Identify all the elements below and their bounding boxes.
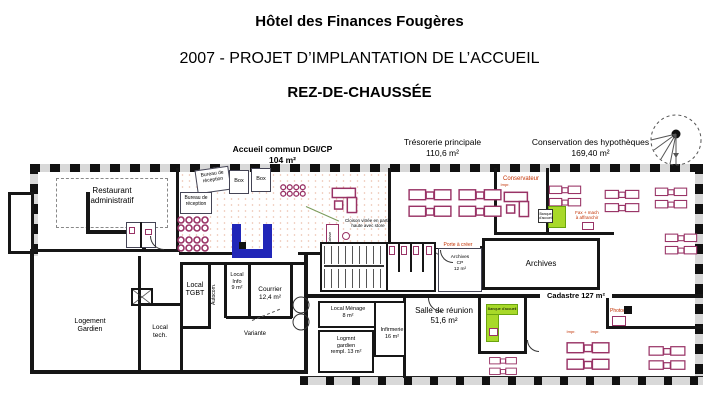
wall	[140, 222, 142, 248]
stair-treads	[324, 246, 384, 264]
note-cloison: Cloison vitrée en partie haute avec stor…	[334, 218, 402, 229]
wall	[606, 326, 703, 329]
wall	[179, 252, 237, 255]
wall	[388, 168, 391, 252]
photocopier-icon	[612, 316, 626, 326]
banque-accueil-tag: Banque d'accueil	[538, 209, 553, 223]
desk-icon	[330, 186, 360, 216]
note-variante: Variante	[238, 331, 272, 338]
room-label-local-info: Local Info 9 m²	[226, 272, 248, 292]
room-label-archives: Archives	[485, 259, 597, 269]
waiting-chairs-icon	[280, 184, 306, 197]
wall	[494, 232, 614, 235]
wall	[478, 298, 481, 354]
room-label-courrier: Courrier 12,4 m²	[250, 286, 290, 302]
banque-accueil-highlight: Banque d'accueil	[486, 304, 518, 315]
banque-accueil-label: Banque d'accueil	[539, 212, 552, 220]
room-archives: Archives	[482, 238, 600, 290]
wall	[30, 164, 696, 172]
entrance-porch	[8, 192, 34, 254]
wall	[398, 242, 400, 272]
sink-icon	[145, 229, 152, 235]
spiral-staircase-icon	[646, 112, 706, 170]
double-door-icon	[290, 296, 312, 332]
wall	[30, 252, 34, 374]
room-label-bureau-reception-1: Bureau de réception	[196, 169, 229, 185]
wall	[180, 262, 306, 265]
toilet-icon	[389, 246, 395, 255]
room-label-infirmerie: Infirmerie 16 m²	[370, 327, 414, 340]
reception-desk-blue	[232, 224, 272, 258]
room-label-local-tech: Local tech.	[140, 324, 180, 340]
wall	[410, 242, 412, 272]
zone-title-tresorerie: Trésorerie principale 110,6 m²	[375, 137, 510, 159]
desk-cluster-icon	[652, 184, 690, 212]
room-bureau-reception-2: Bureau de réception	[180, 192, 212, 214]
desk-cluster-icon	[646, 342, 688, 374]
note-imprimante: Impr.	[498, 183, 512, 188]
room-label-local-tgbt: Local TGBT	[182, 282, 208, 299]
room-label-bureau-reception-2: Bureau de réception	[181, 195, 211, 207]
shaft-x-box	[131, 288, 153, 306]
desk-cluster-icon	[408, 184, 452, 222]
room-label-autocom: Autocom.	[211, 268, 224, 320]
desk-cluster-icon	[482, 354, 524, 378]
door-arc	[527, 340, 539, 352]
page-title: Hôtel des Finances Fougères	[0, 13, 719, 30]
room-label-restaurant: Restaurant administratif	[62, 186, 162, 205]
floor-plan: Hôtel des Finances Fougères 2007 - PROJE…	[0, 0, 719, 412]
room-label-cadastre: Cadastre 127 m²	[540, 291, 612, 300]
wall	[183, 326, 211, 329]
wall	[32, 370, 306, 374]
desk-cluster-icon	[566, 336, 610, 376]
annotation-leader	[252, 309, 280, 321]
room-label-logement-gardien: Logement Gardien	[58, 318, 122, 335]
wall	[524, 298, 527, 354]
note-fax: Fax + mach à affranchir	[570, 210, 604, 221]
chair-icon	[342, 232, 350, 240]
wall	[180, 262, 183, 370]
room-logmnt-gardien: Logmnt gardien rempl. 13 m²	[318, 330, 374, 373]
printer-icon	[489, 328, 498, 336]
fax-machine-icon	[582, 222, 594, 230]
room-box-2: Box	[251, 168, 271, 192]
stair-treads	[324, 269, 384, 288]
wall	[422, 242, 424, 272]
toilet-icon	[426, 246, 432, 255]
desk-cluster-icon	[458, 184, 502, 222]
wall	[306, 294, 703, 298]
note-imprimante: Impr.	[588, 330, 602, 335]
waiting-chairs-icon	[177, 236, 209, 252]
room-label-salle-reunion: Salle de réunion 51,6 m²	[406, 306, 482, 325]
zone-title-accueil: Accueil commun DGI/CP 104 m²	[190, 144, 375, 166]
room-label-box-1: Box	[230, 178, 248, 185]
room-bureau-reception-1: Bureau de réception	[194, 166, 231, 194]
desk-icon	[502, 190, 532, 220]
project-subtitle: 2007 - PROJET D’IMPLANTATION DE L’ACCUEI…	[0, 50, 719, 68]
room-label-logmnt-gardien: Logmnt gardien rempl. 13 m²	[320, 336, 372, 356]
banque-accueil-label: Banque d'accueil	[487, 307, 517, 312]
desk-cluster-icon	[604, 186, 640, 216]
note-imprimante: Impr.	[564, 330, 578, 335]
note-photocopieur: Photoc.	[610, 308, 636, 314]
chair-icon	[239, 242, 246, 249]
wall	[86, 192, 90, 232]
floor-title: REZ-DE-CHAUSSÉE	[0, 84, 719, 101]
room-label-box-2: Box	[252, 176, 270, 183]
wall	[30, 249, 180, 252]
waiting-chairs-icon	[177, 216, 209, 232]
toilet-icon	[413, 246, 419, 255]
column	[624, 306, 632, 314]
toilet-icon	[129, 227, 135, 234]
stair-divider	[324, 265, 384, 267]
room-local-menage: Local Ménage 8 m²	[318, 301, 378, 328]
toilet-icon	[401, 246, 407, 255]
wall	[695, 164, 703, 380]
room-label-local-menage: Local Ménage 8 m²	[320, 306, 376, 319]
room-box-1: Box	[229, 170, 249, 194]
desk-cluster-icon	[664, 230, 698, 258]
wall	[138, 256, 141, 370]
room-infirmerie: Infirmerie 16 m²	[374, 301, 406, 357]
wall	[606, 298, 609, 328]
